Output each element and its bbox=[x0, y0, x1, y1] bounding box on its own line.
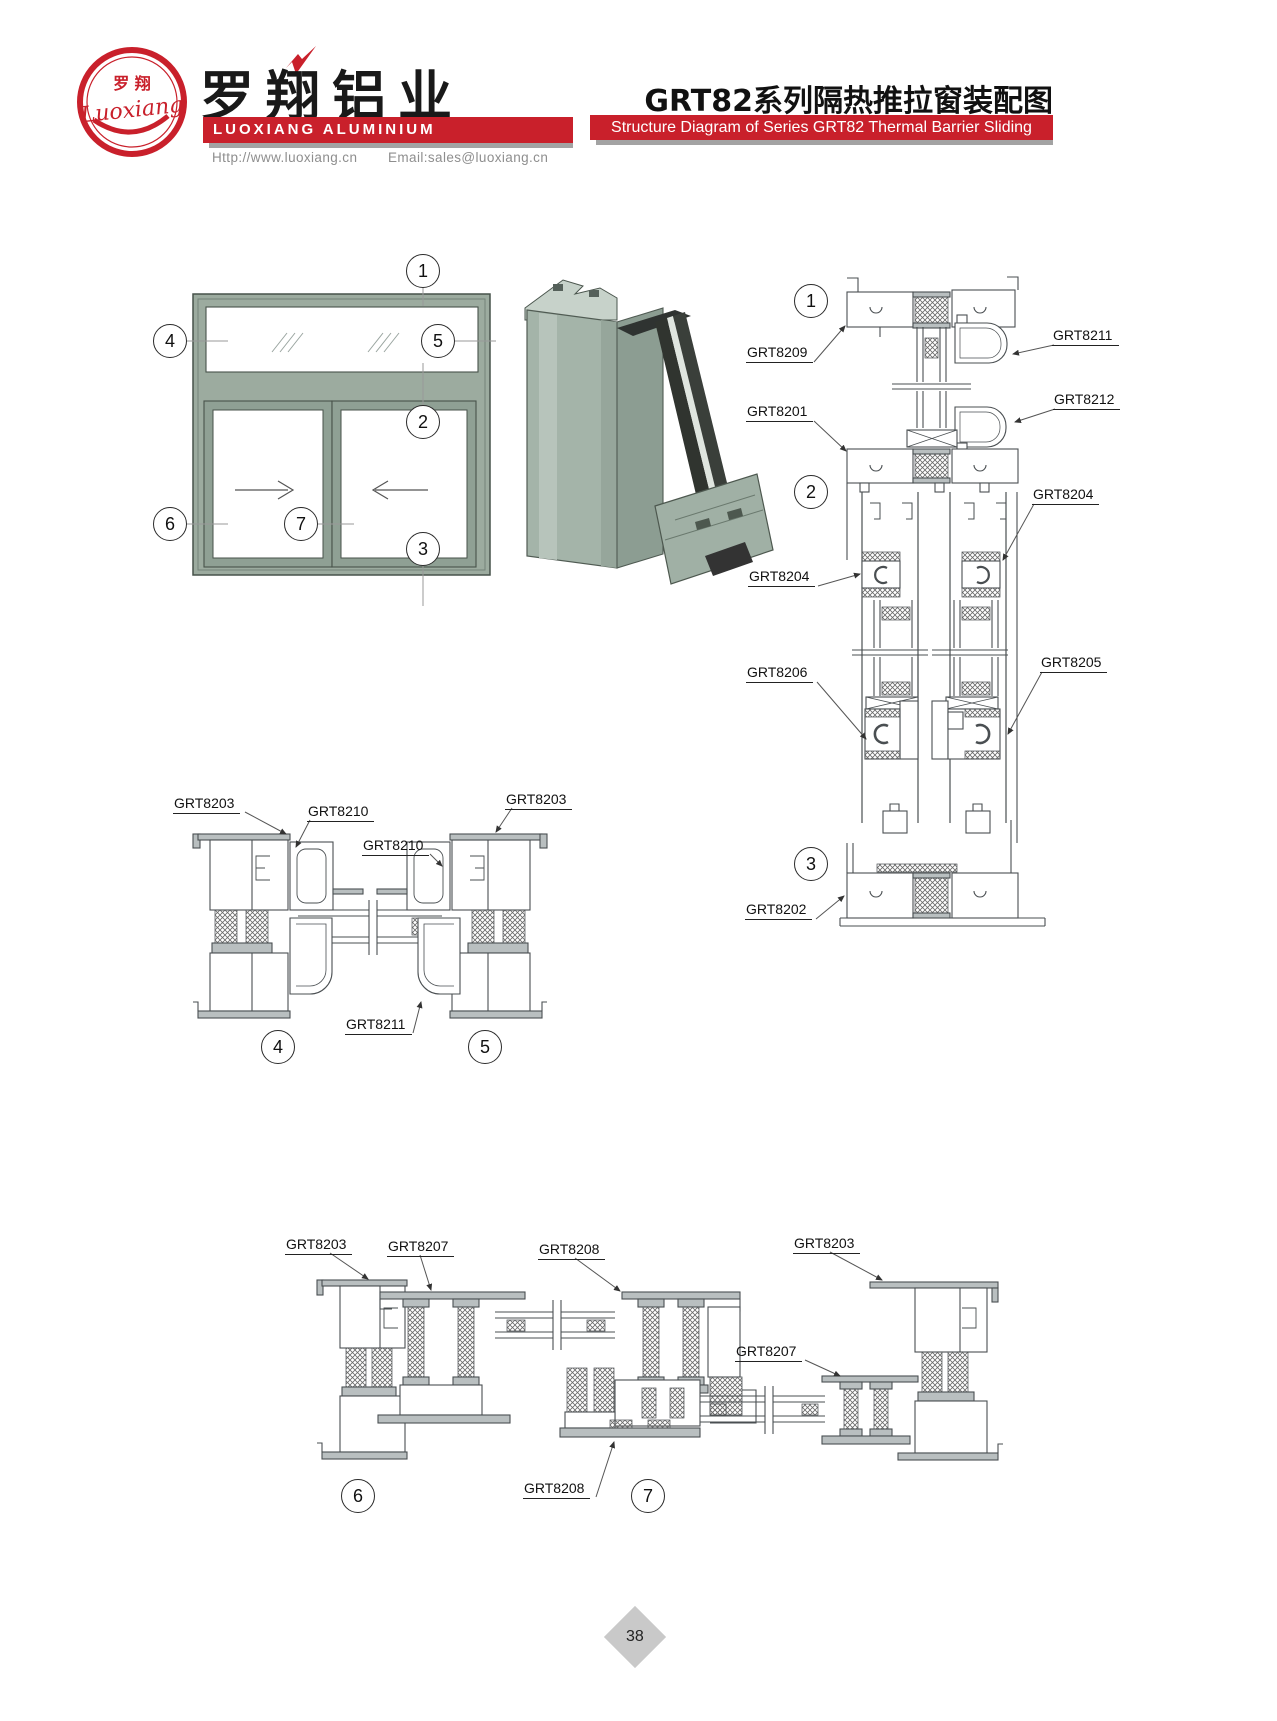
part-label-grt8203-left: GRT8203 bbox=[285, 1236, 352, 1255]
part-label-grt8203-right: GRT8203 bbox=[505, 791, 572, 810]
elevation-marker-6: 6 bbox=[153, 507, 187, 541]
part-label-grt8203-left: GRT8203 bbox=[173, 795, 240, 814]
company-logo: 罗 翔 Luoxiang bbox=[72, 42, 192, 162]
section-marker-3: 3 bbox=[794, 847, 828, 881]
marker-number: 4 bbox=[273, 1037, 283, 1058]
redbar-shadow bbox=[209, 143, 573, 148]
part-label-grt8210-left: GRT8210 bbox=[307, 803, 374, 822]
elevation-marker-5: 5 bbox=[421, 324, 455, 358]
section-marker-6: 6 bbox=[341, 1479, 375, 1513]
part-label-grt8211: GRT8211 bbox=[1052, 327, 1119, 346]
email-text: Email:sales@luoxiang.cn bbox=[388, 150, 548, 165]
elevation-drawing bbox=[140, 235, 500, 625]
marker-number: 5 bbox=[480, 1037, 490, 1058]
elevation-marker-7: 7 bbox=[284, 507, 318, 541]
marker-number: 6 bbox=[165, 514, 175, 535]
part-label-grt8209: GRT8209 bbox=[746, 344, 813, 363]
marker-number: 6 bbox=[353, 1486, 363, 1507]
website-text: Http://www.luoxiang.cn bbox=[212, 150, 357, 165]
elevation-marker-1: 1 bbox=[406, 254, 440, 288]
page-number-badge: 38 bbox=[604, 1606, 666, 1668]
section-marker-4: 4 bbox=[261, 1030, 295, 1064]
section-marker-2: 2 bbox=[794, 475, 828, 509]
marker-number: 4 bbox=[165, 331, 175, 352]
part-label-grt8208-top: GRT8208 bbox=[538, 1241, 605, 1260]
vertical-section-view: 1 2 3 GRT8209 GRT8211 GRT8201 GRT8212 GR… bbox=[680, 245, 1120, 935]
part-label-grt8207-middle: GRT8207 bbox=[735, 1343, 802, 1362]
logo-zh-text: 罗 翔 bbox=[72, 70, 192, 94]
elevation-view: 1 2 3 4 5 6 7 bbox=[140, 235, 500, 625]
redbar-shadow-right bbox=[596, 140, 1053, 145]
catalog-page: 罗 翔 Luoxiang 罗翔铝业 LUOXIANG ALUMINIUM Htt… bbox=[0, 0, 1277, 1721]
marker-number: 7 bbox=[296, 514, 306, 535]
horizontal-section-67-drawing bbox=[270, 1230, 1070, 1520]
marker-number: 5 bbox=[433, 331, 443, 352]
marker-number: 1 bbox=[418, 261, 428, 282]
elevation-marker-2: 2 bbox=[406, 405, 440, 439]
part-label-grt8207-top: GRT8207 bbox=[387, 1238, 454, 1257]
marker-number: 1 bbox=[806, 291, 816, 312]
part-label-grt8202: GRT8202 bbox=[745, 901, 812, 920]
section-marker-1: 1 bbox=[794, 284, 828, 318]
part-label-grt8210-center: GRT8210 bbox=[362, 837, 429, 856]
part-label-grt8212: GRT8212 bbox=[1053, 391, 1120, 410]
part-label-grt8204-left: GRT8204 bbox=[748, 568, 815, 587]
marker-number: 3 bbox=[418, 539, 428, 560]
part-label-grt8208-bottom: GRT8208 bbox=[523, 1480, 590, 1499]
page-title-en: Structure Diagram of Series GRT82 Therma… bbox=[590, 115, 1053, 140]
horizontal-section-45-drawing bbox=[150, 790, 580, 1080]
page-title-zh: GRT82系列隔热推拉窗装配图 bbox=[590, 76, 1053, 120]
part-label-grt8204-right: GRT8204 bbox=[1032, 486, 1099, 505]
marker-number: 2 bbox=[806, 482, 816, 503]
marker-number: 3 bbox=[806, 854, 816, 875]
section-marker-7: 7 bbox=[631, 1479, 665, 1513]
marker-number: 2 bbox=[418, 412, 428, 433]
horizontal-section-67: 6 7 GRT8203 GRT8207 GRT8208 GRT8203 GRT8… bbox=[270, 1230, 1070, 1520]
section-marker-5: 5 bbox=[468, 1030, 502, 1064]
horizontal-section-45: 4 5 GRT8203 GRT8210 GRT8210 GRT8203 GRT8… bbox=[150, 790, 580, 1080]
part-label-grt8201: GRT8201 bbox=[746, 403, 813, 422]
elevation-marker-3: 3 bbox=[406, 532, 440, 566]
part-label-grt8211-bottom: GRT8211 bbox=[345, 1016, 412, 1035]
part-label-grt8206: GRT8206 bbox=[746, 664, 813, 683]
part-label-grt8203-right: GRT8203 bbox=[793, 1235, 860, 1254]
company-name-en: LUOXIANG ALUMINIUM bbox=[203, 117, 573, 143]
marker-number: 7 bbox=[643, 1486, 653, 1507]
part-label-grt8205: GRT8205 bbox=[1040, 654, 1107, 673]
page-number: 38 bbox=[626, 1628, 644, 1646]
elevation-marker-4: 4 bbox=[153, 324, 187, 358]
